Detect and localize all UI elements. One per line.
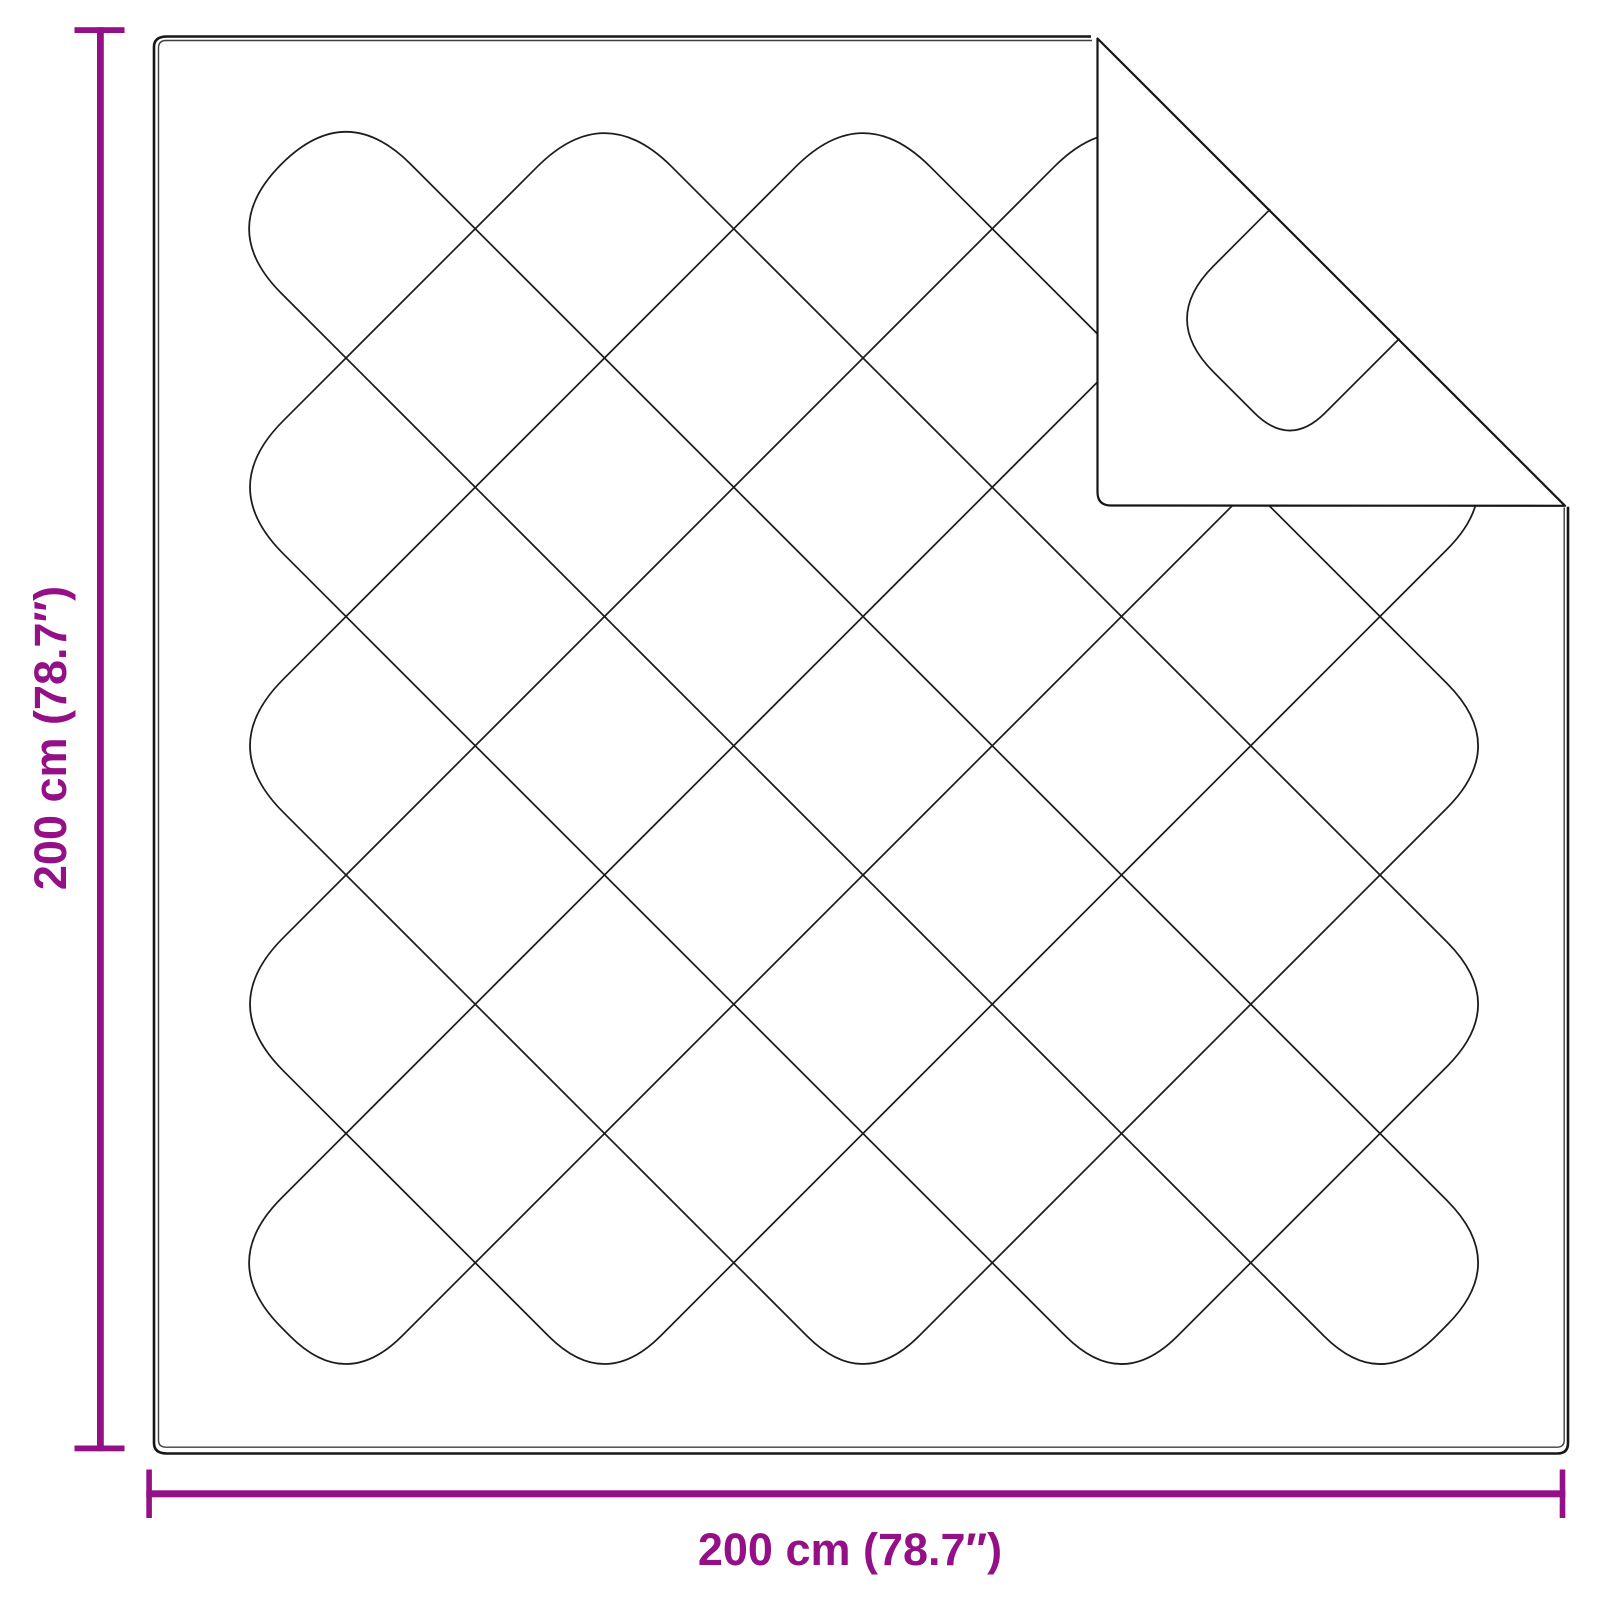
svg-text:200 cm (78.7″): 200 cm (78.7″) <box>698 1524 1002 1575</box>
svg-text:200 cm (78.7″): 200 cm (78.7″) <box>25 586 76 890</box>
